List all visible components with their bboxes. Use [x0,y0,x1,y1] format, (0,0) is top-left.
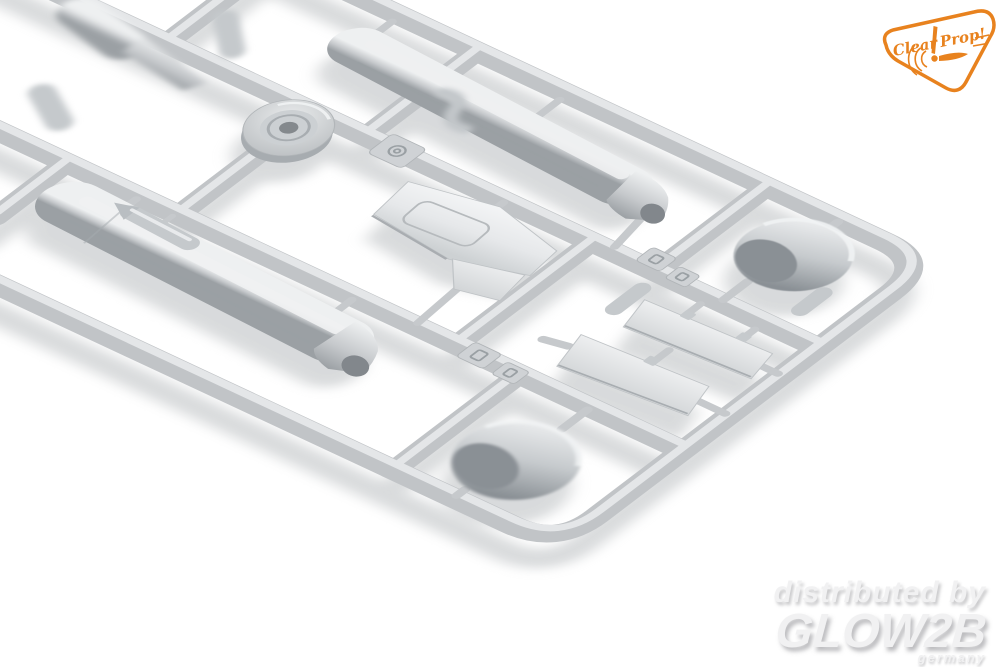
product-photo: Clear Prop! distributed by GLOW2B german… [0,0,1000,667]
watermark-glow2b: GLOW2B [772,610,987,654]
sprue-photo-svg: Clear Prop! [0,0,1000,667]
distributor-watermark: distributed by GLOW2B germany [774,576,986,665]
sprue [0,0,950,571]
logo-word-prop: Prop! [937,24,987,51]
clearprop-logo: Clear Prop! [885,11,994,91]
